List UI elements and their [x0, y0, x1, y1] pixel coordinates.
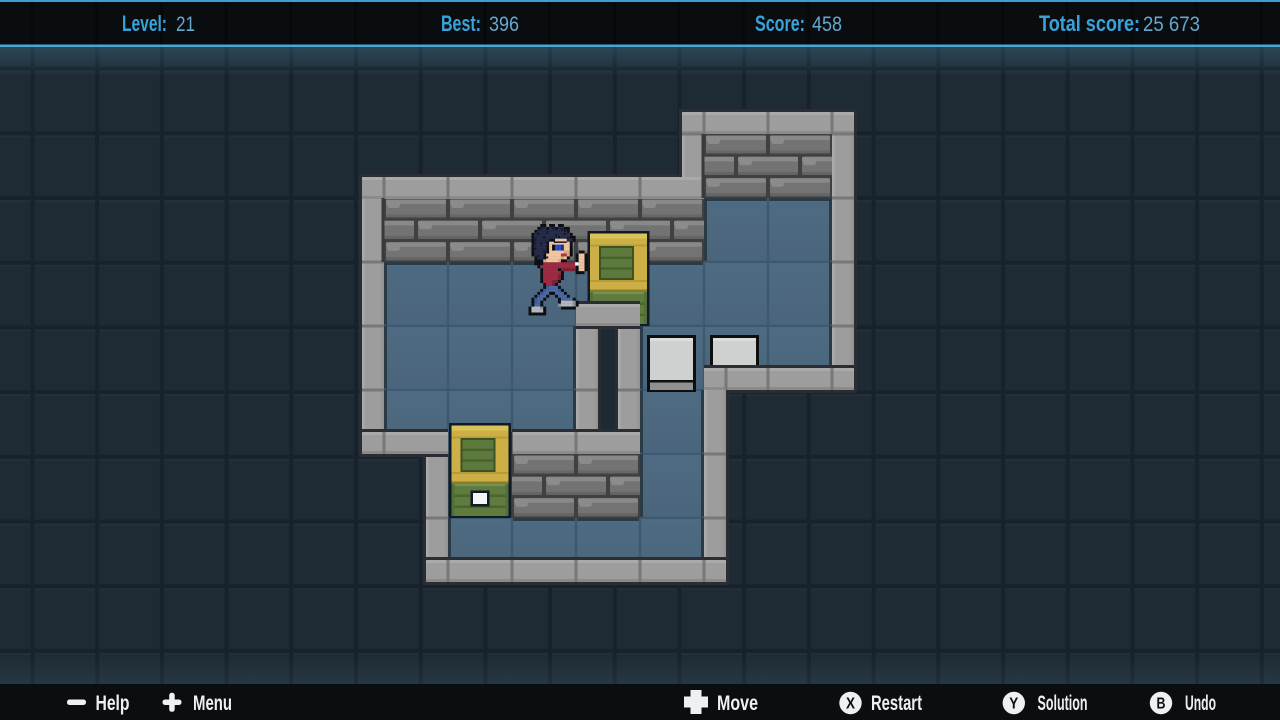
svg-text:Score:: Score:: [755, 11, 805, 36]
svg-text:Menu: Menu: [193, 692, 232, 715]
svg-text:Total score:: Total score:: [1039, 11, 1140, 36]
svg-text:Level:: Level:: [122, 11, 167, 36]
svg-text:B: B: [1157, 695, 1166, 712]
svg-text:Y: Y: [1009, 695, 1019, 712]
svg-text:Restart: Restart: [871, 692, 922, 715]
svg-text:Help: Help: [96, 692, 130, 715]
svg-text:25 673: 25 673: [1143, 12, 1200, 36]
svg-text:Move: Move: [717, 692, 758, 715]
svg-text:Undo: Undo: [1185, 692, 1216, 715]
svg-text:458: 458: [812, 12, 842, 36]
svg-text:396: 396: [489, 12, 519, 36]
svg-text:X: X: [846, 695, 856, 712]
svg-text:21: 21: [176, 12, 195, 36]
svg-text:Best:: Best:: [441, 11, 481, 36]
svg-text:Solution: Solution: [1038, 692, 1088, 715]
